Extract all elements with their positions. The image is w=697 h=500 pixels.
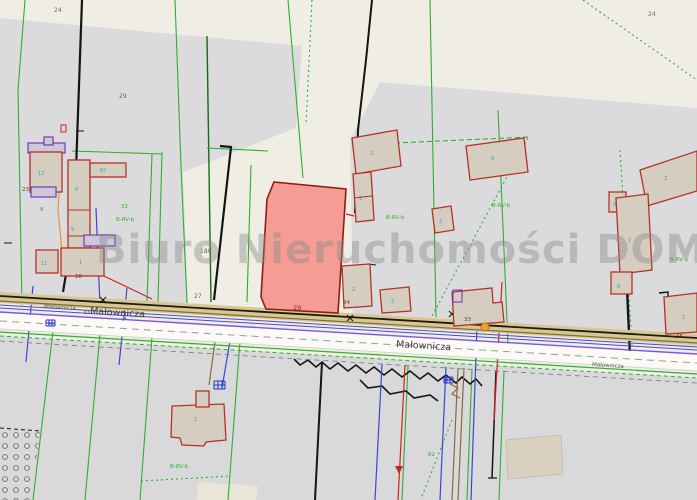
parcel-number: 8: [40, 207, 44, 213]
address-number: 33: [464, 317, 471, 323]
parcel-number: 27: [194, 293, 202, 300]
building-label: 1: [359, 196, 362, 202]
building-label: 8: [613, 202, 616, 208]
building-label: 8: [75, 187, 78, 193]
building: [466, 138, 528, 180]
building-label: 2: [352, 287, 355, 293]
address-number: 29: [293, 304, 301, 312]
map-canvas: 24 29 24 27 32 8 180 62 B-RV-b B-RV-b B-…: [0, 0, 697, 500]
building-label: 8: [617, 284, 620, 290]
building-label: 87: [100, 168, 106, 174]
land-use-label: B-RV-b: [386, 215, 405, 221]
building-label: 2: [664, 176, 667, 182]
land-use-label: B-RV-b: [116, 217, 135, 223]
building-label: 11: [41, 261, 47, 267]
building-label: 1: [682, 315, 685, 321]
address-number: 28: [75, 274, 82, 280]
building: [664, 293, 697, 334]
lamp-symbol: [481, 323, 489, 331]
watermark: Biuro Nieruchomości DOM: [96, 227, 697, 273]
building-label: 8: [491, 156, 494, 162]
address-number: 34: [343, 300, 350, 306]
cadastral-map: 24 29 24 27 32 8 180 62 B-RV-b B-RV-b B-…: [0, 0, 697, 500]
building-label: 1: [194, 417, 197, 423]
building: [611, 272, 632, 294]
parcel-number: 32: [121, 204, 128, 210]
building-annex-purple: [44, 137, 53, 145]
building-label: 1: [79, 260, 82, 266]
parcel-number: 24: [54, 7, 62, 14]
building-label: 2: [439, 219, 442, 225]
building: [352, 130, 401, 174]
address-number: 23: [22, 187, 29, 193]
building-label: 12: [38, 171, 44, 177]
building-label: 9: [71, 227, 74, 233]
land-use-label: B-RV-b: [492, 203, 511, 209]
parcel-number: 29: [119, 93, 127, 100]
land-use-label: B-RV-b: [170, 464, 189, 470]
building: [90, 163, 126, 177]
building: [380, 287, 411, 313]
building: [30, 152, 62, 192]
building: [196, 391, 209, 407]
address-number: 35: [676, 334, 683, 340]
parcel-number: 24: [648, 11, 656, 18]
building-label: 2: [370, 151, 373, 157]
building-annex-purple: [31, 187, 56, 197]
building-label: 2: [391, 299, 394, 305]
building-unoutlined: [506, 435, 563, 479]
parcel-number: 62: [428, 452, 435, 458]
